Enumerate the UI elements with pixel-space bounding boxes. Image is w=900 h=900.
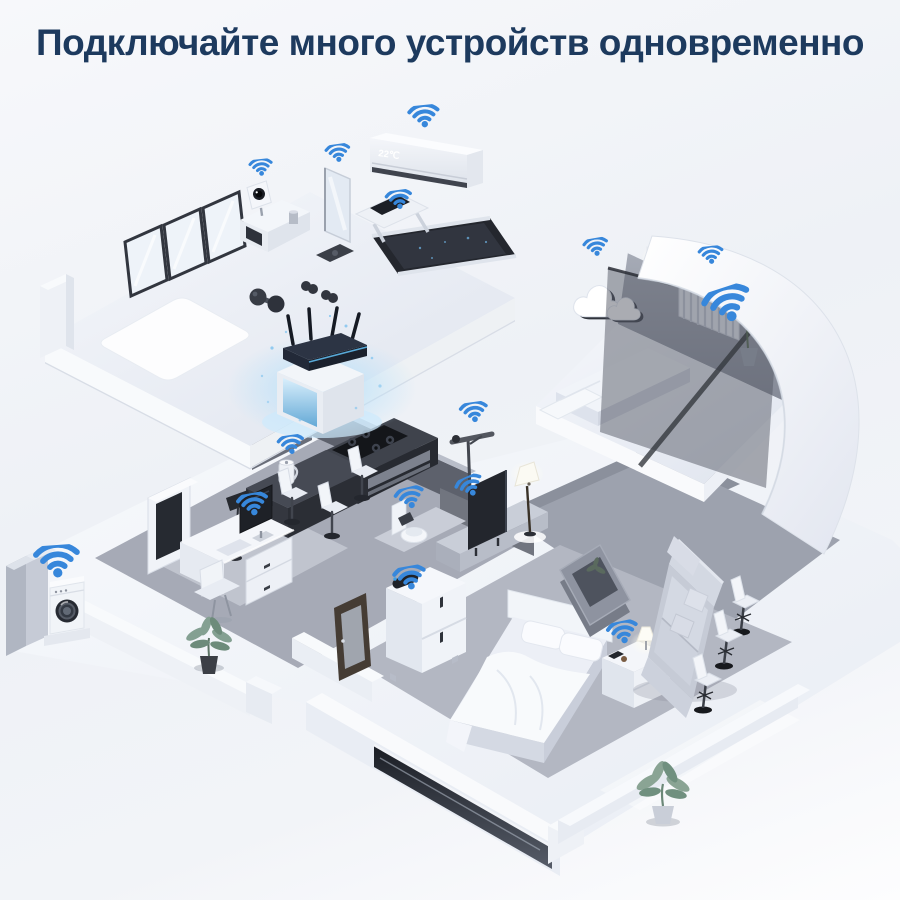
smart-home-scene: 22℃ bbox=[0, 90, 900, 900]
house-illustration: 22℃ bbox=[0, 90, 900, 900]
page-title: Подключайте много устройств одновременно bbox=[0, 22, 900, 64]
air-conditioner: 22℃ bbox=[370, 133, 483, 188]
promo-banner: Подключайте много устройств одновременно bbox=[0, 0, 900, 900]
washing-machine bbox=[44, 576, 90, 646]
door bbox=[334, 593, 371, 681]
gym-bench bbox=[40, 274, 74, 358]
smart-mirror bbox=[325, 168, 350, 242]
cup bbox=[289, 210, 298, 224]
